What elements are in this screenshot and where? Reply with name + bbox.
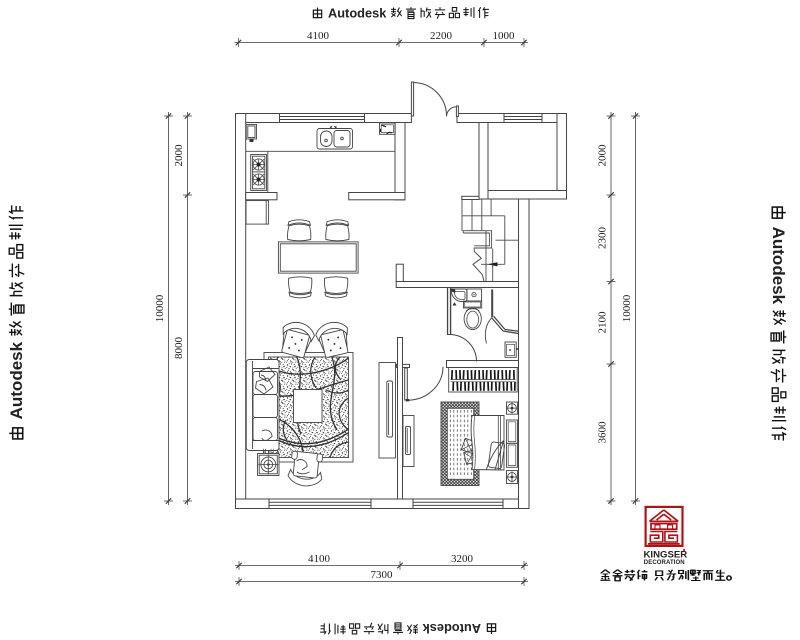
svg-text:2100: 2100 <box>597 311 609 334</box>
svg-text:2000: 2000 <box>173 144 185 167</box>
svg-text:10000: 10000 <box>154 294 166 322</box>
svg-text:2000: 2000 <box>597 144 609 167</box>
svg-text:3600: 3600 <box>597 421 609 444</box>
svg-text:1000: 1000 <box>493 30 516 42</box>
svg-text:10000: 10000 <box>621 294 633 322</box>
svg-text:8000: 8000 <box>173 337 185 360</box>
svg-text:4100: 4100 <box>307 30 330 42</box>
svg-text:2200: 2200 <box>430 30 453 42</box>
svg-text:3200: 3200 <box>451 553 474 565</box>
svg-text:KINGSER: KINGSER <box>644 550 688 561</box>
svg-text:4100: 4100 <box>308 553 331 565</box>
svg-text:2300: 2300 <box>597 227 609 250</box>
svg-text:7300: 7300 <box>371 569 394 581</box>
svg-text:DECORATION: DECORATION <box>644 560 685 566</box>
